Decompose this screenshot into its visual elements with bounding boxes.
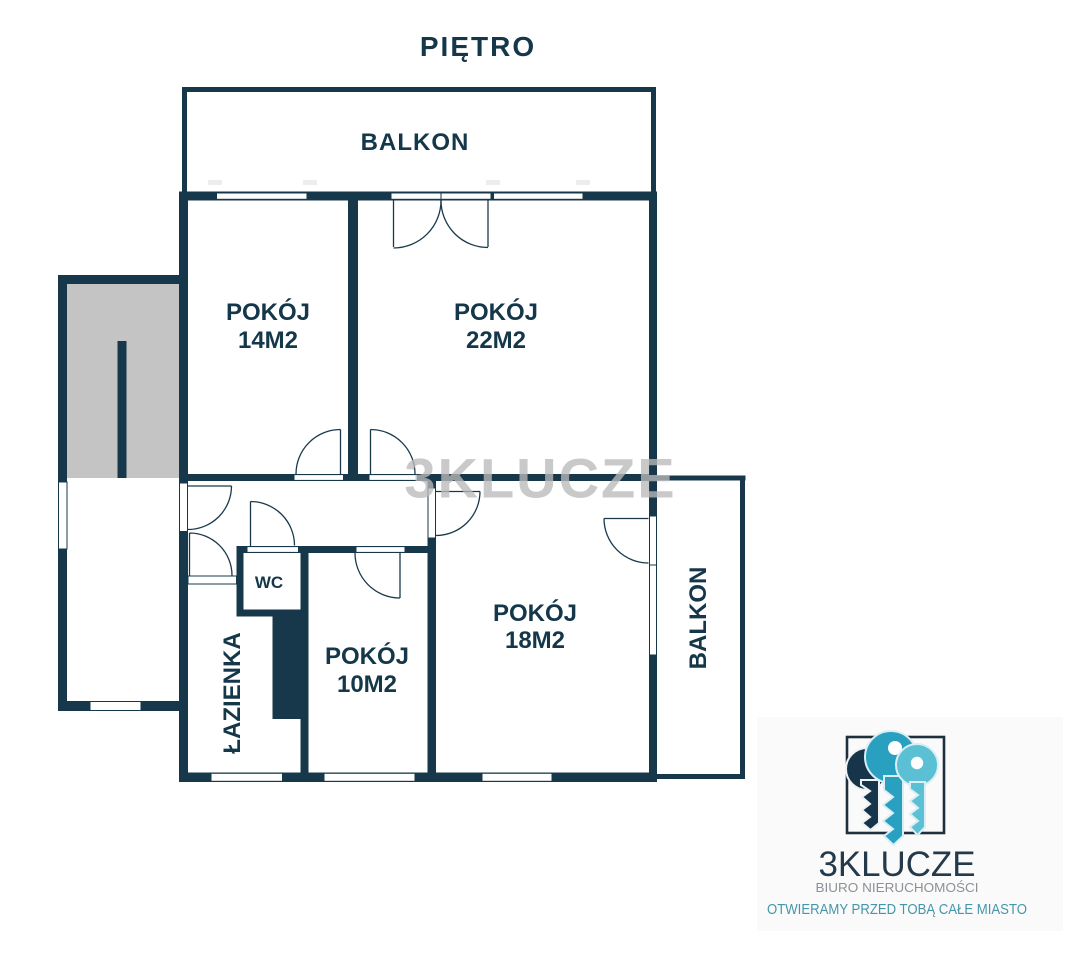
svg-text:14M2: 14M2 [238,327,298,354]
svg-text:BALKON: BALKON [685,567,712,670]
svg-text:22M2: 22M2 [466,327,526,354]
svg-text:OTWIERAMY PRZED TOBĄ CAŁE MIAS: OTWIERAMY PRZED TOBĄ CAŁE MIASTO [767,902,1027,918]
svg-text:POKÓJ: POKÓJ [226,298,310,326]
svg-text:3KLUCZE: 3KLUCZE [404,447,676,510]
svg-text:10M2: 10M2 [337,671,397,698]
svg-text:POKÓJ: POKÓJ [325,642,409,670]
svg-text:PIĘTRO: PIĘTRO [420,31,536,62]
svg-text:BALKON: BALKON [361,129,470,156]
svg-text:POKÓJ: POKÓJ [454,298,538,326]
svg-text:3KLUCZE: 3KLUCZE [819,845,976,884]
svg-text:BIURO NIERUCHOMOŚCI: BIURO NIERUCHOMOŚCI [816,880,979,895]
svg-text:POKÓJ: POKÓJ [493,599,577,627]
svg-text:ŁAZIENKA: ŁAZIENKA [219,632,246,753]
svg-text:WC: WC [255,573,283,592]
svg-text:18M2: 18M2 [505,627,565,654]
